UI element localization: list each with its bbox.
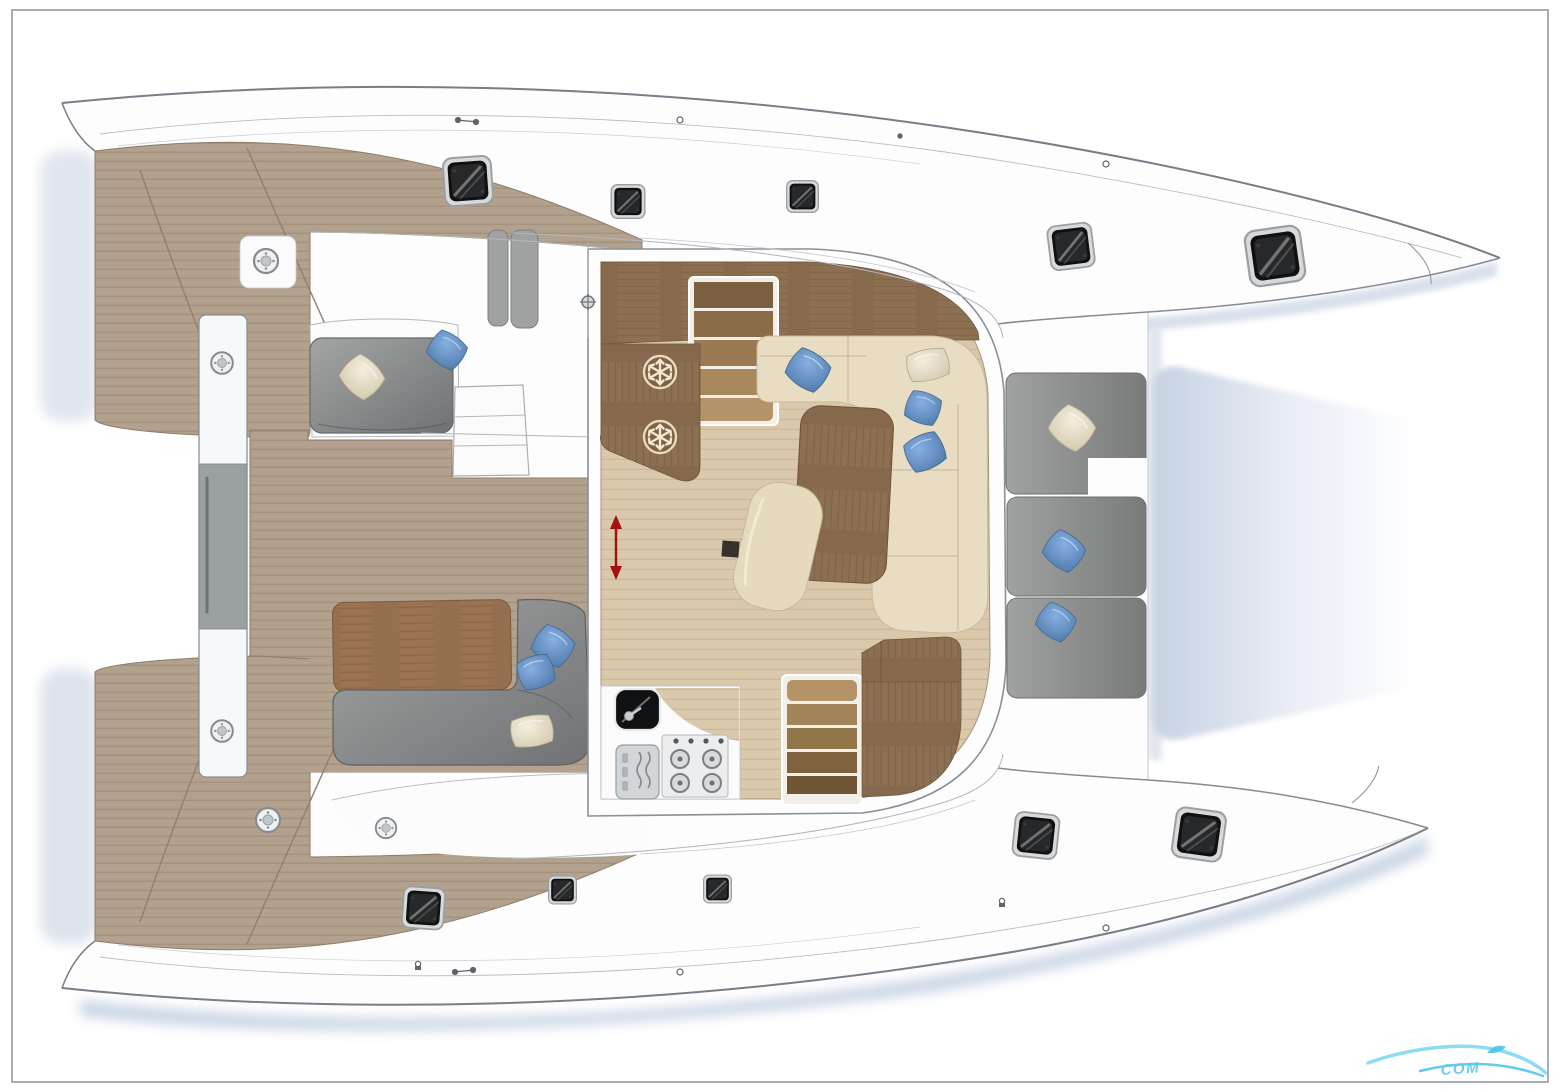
deck-fitting-icon [211, 720, 233, 742]
microwave-icon [616, 745, 659, 799]
catamaran-deck-plan: COM [0, 0, 1560, 1092]
deck-hatch-icon [704, 875, 732, 903]
deck-hatch-icon [1046, 222, 1095, 271]
deck-hatch-icon [1171, 806, 1227, 862]
helm-seat-pad [511, 230, 538, 328]
deck-fitting-icon [376, 818, 396, 838]
deck-hatch-icon [1012, 811, 1061, 860]
helm-seat-pad [488, 230, 508, 326]
deck-hatch-icon [401, 886, 445, 930]
forward-cockpit-seats [1006, 373, 1148, 698]
sink-icon [615, 689, 660, 730]
deck-hatch-icon [787, 181, 819, 213]
deck-plan-canvas: COM [0, 0, 1560, 1092]
deck-hatch-icon [442, 155, 493, 206]
deck-hatch-icon [1244, 225, 1307, 288]
galley-aft [601, 686, 740, 799]
table-leg-mount [721, 540, 739, 557]
companionway-stairs-starboard [782, 675, 862, 805]
watermark-text: COM [1440, 1059, 1481, 1079]
cockpit-steps [453, 385, 529, 476]
deck-fitting-icon [256, 808, 280, 832]
aft-bench-column [199, 315, 247, 777]
deck-hatch-icon [549, 876, 577, 904]
deck-fitting-icon [211, 352, 233, 374]
watermark: COM [1368, 1046, 1546, 1079]
deck-hatch-icon [611, 185, 645, 219]
wave-logo-icon [1420, 1064, 1543, 1076]
stove-burners-icon [662, 735, 728, 797]
saloon [588, 249, 1006, 816]
deck-fitting-icon [254, 249, 278, 273]
cockpit-table [332, 599, 512, 692]
trampoline [1152, 366, 1466, 739]
